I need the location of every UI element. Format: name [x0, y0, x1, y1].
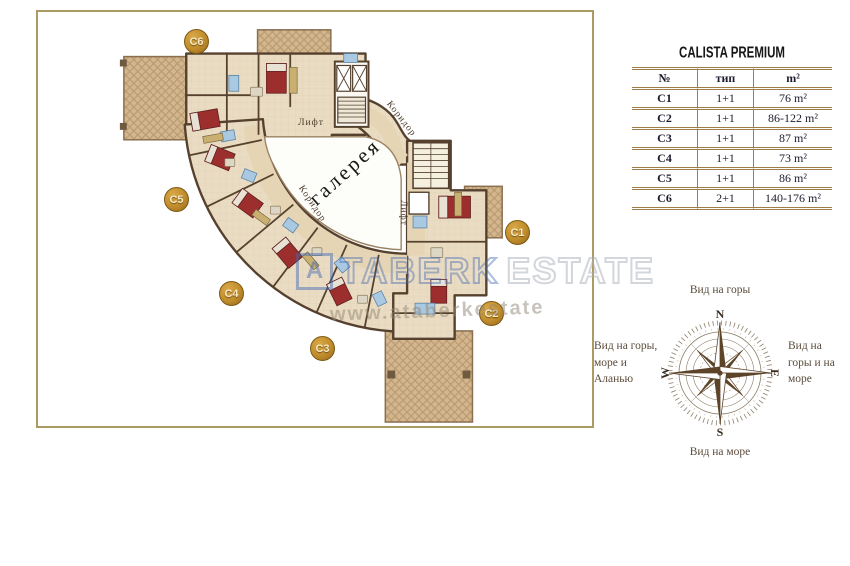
view-label-north: Вид на горы — [588, 284, 850, 296]
page: галерея Лифт Лифт Коридор Коридор C6 C5 … — [0, 0, 850, 566]
cell-area: 86-122 m² — [754, 110, 832, 130]
compass-rose: N S W E — [660, 308, 780, 438]
table-row: C1 1+1 76 m² — [632, 90, 832, 110]
unit-badge-c6: C6 — [184, 29, 209, 54]
cell-type: 1+1 — [698, 150, 754, 170]
compass-w: W — [660, 367, 672, 379]
units-table: № тип m² C1 1+1 76 m² C2 1+1 86-122 m² C… — [632, 67, 832, 210]
floor-plan-drawing — [38, 12, 592, 426]
cell-type: 2+1 — [698, 190, 754, 210]
compass-panel: Вид на горы Вид на море Вид на горы, мор… — [588, 278, 850, 474]
cell-area: 140-176 m² — [754, 190, 832, 210]
compass-s: S — [717, 425, 724, 438]
units-table-panel: CALISTA PREMIUM № тип m² C1 1+1 76 m² C2… — [612, 44, 850, 210]
cell-area: 76 m² — [754, 90, 832, 110]
cell-no: C2 — [632, 110, 698, 130]
cell-area: 86 m² — [754, 170, 832, 190]
unit-badge-c4: C4 — [219, 281, 244, 306]
table-row: C2 1+1 86-122 m² — [632, 110, 832, 130]
unit-badge-c2: C2 — [479, 301, 504, 326]
cell-type: 1+1 — [698, 110, 754, 130]
elevator-label-top: Лифт — [298, 118, 324, 128]
view-label-west: Вид на горы, море и Аланью — [594, 338, 664, 388]
unit-badge-c1: C1 — [505, 220, 530, 245]
unit-badge-c3: C3 — [310, 336, 335, 361]
table-title: CALISTA PREMIUM — [634, 43, 831, 61]
col-header-type: тип — [698, 67, 754, 90]
compass-n: N — [716, 308, 725, 321]
cell-no: C6 — [632, 190, 698, 210]
cell-no: C3 — [632, 130, 698, 150]
compass-e: E — [768, 369, 780, 377]
cell-type: 1+1 — [698, 170, 754, 190]
view-label-south: Вид на море — [588, 446, 850, 458]
floor-plan-frame: галерея Лифт Лифт Коридор Коридор C6 C5 … — [36, 10, 594, 428]
col-header-area: m² — [754, 67, 832, 90]
cell-no: C4 — [632, 150, 698, 170]
table-row: C4 1+1 73 m² — [632, 150, 832, 170]
table-header-row: № тип m² — [632, 67, 832, 90]
cell-no: C1 — [632, 90, 698, 110]
cell-type: 1+1 — [698, 130, 754, 150]
cell-type: 1+1 — [698, 90, 754, 110]
elevator-core — [335, 62, 369, 127]
elevator-label-right: Лифт — [398, 200, 408, 226]
cell-no: C5 — [632, 170, 698, 190]
table-row: C6 2+1 140-176 m² — [632, 190, 832, 210]
unit-badge-c5: C5 — [164, 187, 189, 212]
cell-area: 73 m² — [754, 150, 832, 170]
table-row: C5 1+1 86 m² — [632, 170, 832, 190]
col-header-no: № — [632, 67, 698, 90]
table-row: C3 1+1 87 m² — [632, 130, 832, 150]
cell-area: 87 m² — [754, 130, 832, 150]
view-label-east: Вид на горы и на море — [788, 338, 850, 388]
